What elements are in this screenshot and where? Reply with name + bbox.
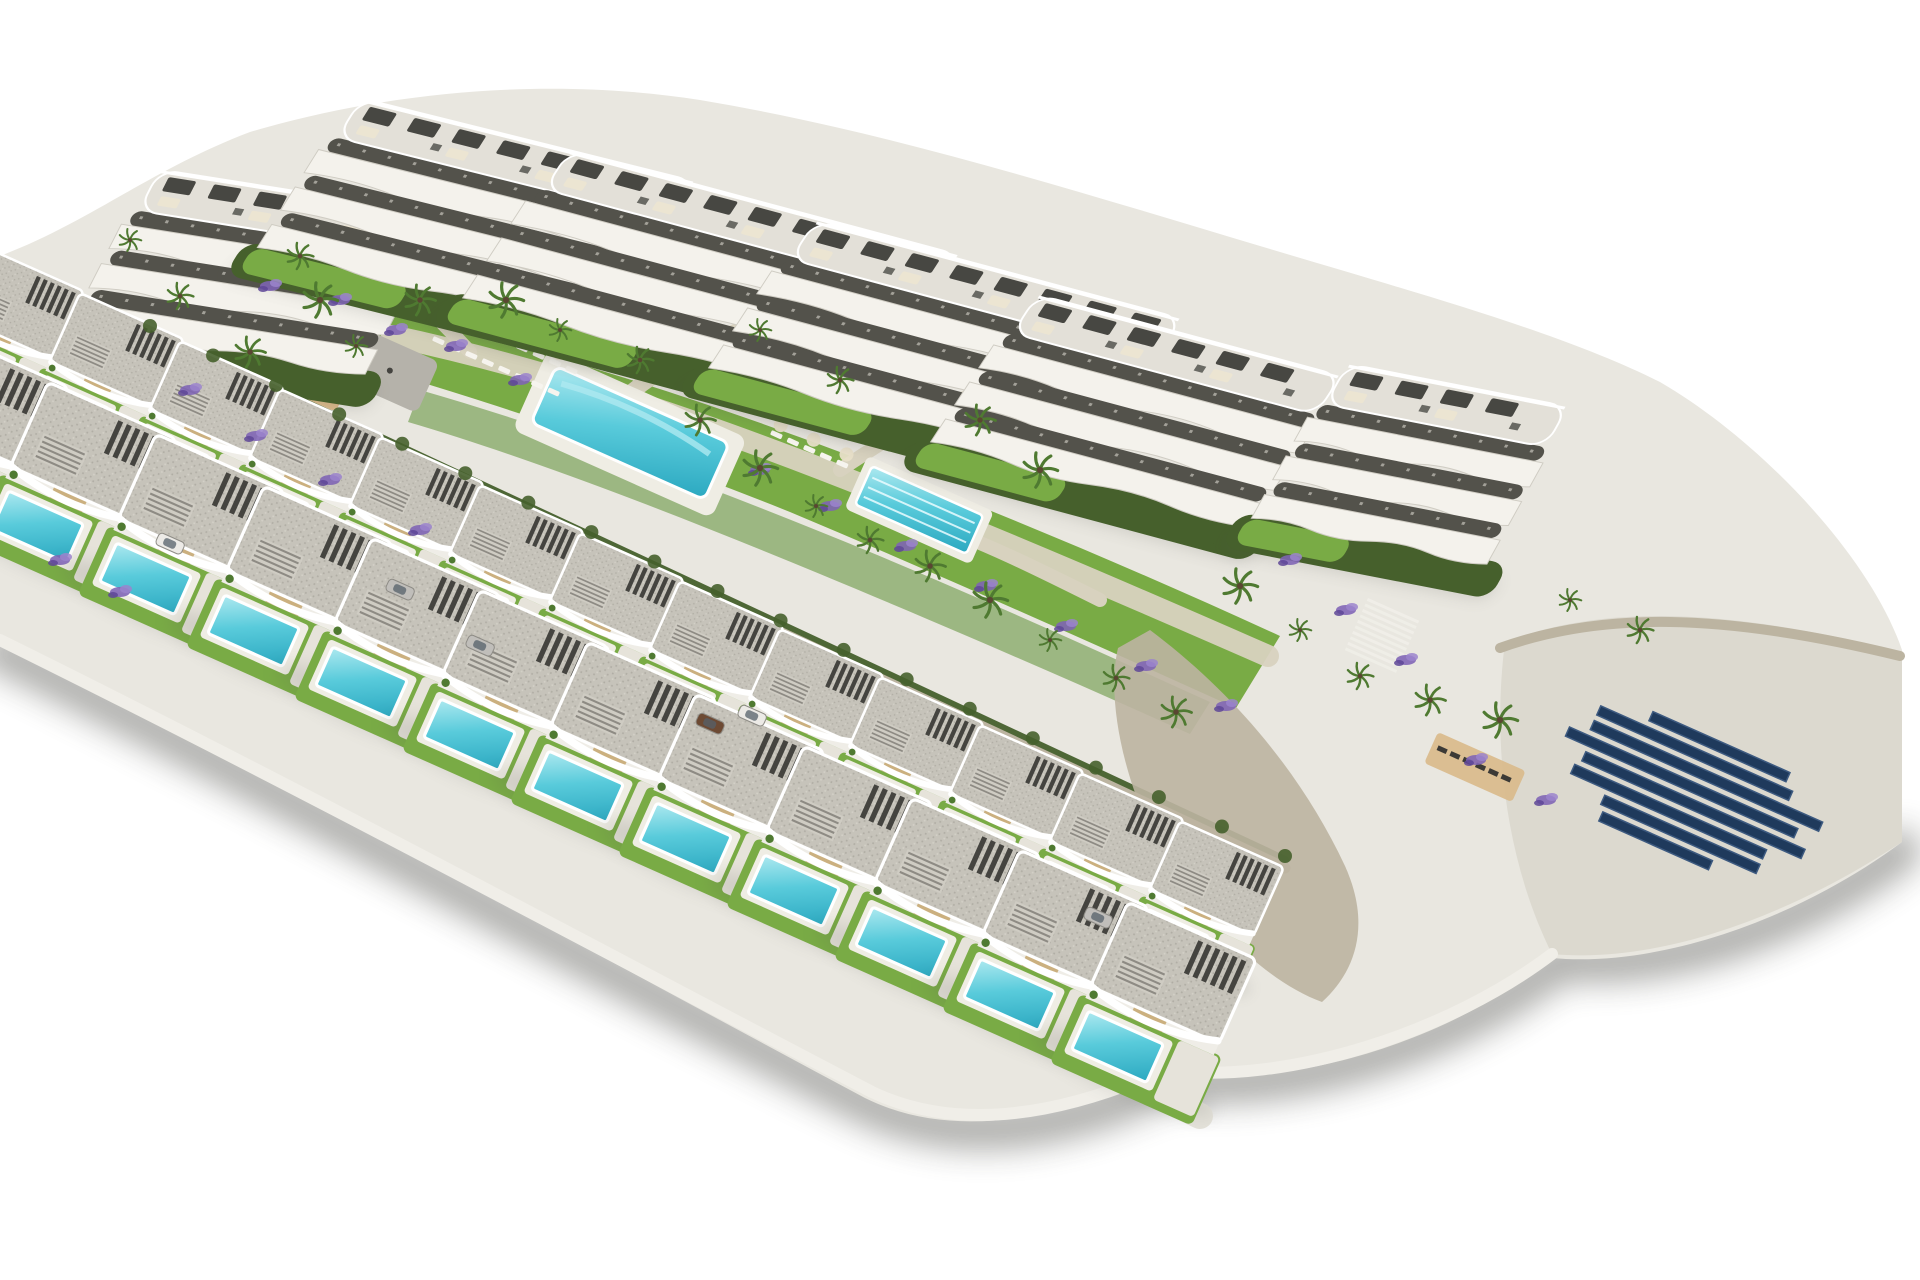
lavender-clump: [830, 499, 842, 507]
lavender-clump: [1066, 619, 1078, 627]
palm-trunk-top: [128, 238, 132, 242]
lavender-clump: [508, 380, 518, 386]
wall-hedge-bush: [395, 437, 409, 451]
lavender-clump: [1346, 603, 1358, 611]
wall-hedge-bush: [963, 702, 977, 716]
lavender-clump: [396, 323, 408, 331]
palm-trunk-top: [838, 378, 843, 383]
lavender-clump: [60, 553, 72, 561]
wall-hedge-bush: [711, 584, 725, 598]
wall-hedge-bush: [1089, 761, 1103, 775]
lavender-clump: [384, 330, 394, 336]
lavender-clump: [986, 579, 998, 587]
palm-trunk-top: [868, 538, 873, 543]
lavender-clump: [1394, 660, 1404, 666]
palm-trunk-top: [814, 504, 818, 508]
palm-trunk-top: [298, 254, 303, 259]
palm-trunk-top: [1237, 583, 1243, 589]
palm-trunk-top: [987, 597, 993, 603]
palm-trunk-top: [178, 294, 183, 299]
lavender-clump: [1146, 659, 1158, 667]
palm-trunk-top: [1568, 598, 1572, 602]
lavender-clump: [258, 286, 268, 292]
lavender-clump: [340, 293, 352, 301]
palm-trunk-top: [1037, 467, 1043, 473]
palm-trunk-top: [977, 417, 983, 423]
lavender-clump: [1534, 800, 1544, 806]
palm-trunk-top: [638, 358, 643, 363]
wall-hedge-bush: [206, 348, 220, 362]
palm-trunk-top: [1497, 717, 1503, 723]
wall-hedge-bush: [1152, 790, 1166, 804]
wall-hedge-bush: [647, 555, 661, 569]
lavender-clump: [48, 560, 58, 566]
lavender-clump: [1278, 560, 1288, 566]
palm-trunk-top: [417, 297, 423, 303]
palm-trunk-top: [317, 297, 323, 303]
wall-hedge-bush: [900, 672, 914, 686]
wall-hedge-bush: [521, 496, 535, 510]
lavender-clump: [178, 390, 188, 396]
lavender-clump: [974, 586, 984, 592]
wall-hedge-bush: [1278, 849, 1292, 863]
palm-trunk-top: [247, 349, 253, 355]
lavender-clump: [444, 346, 454, 352]
wall-hedge-bush: [584, 525, 598, 539]
lavender-clump: [1546, 793, 1558, 801]
lavender-clump: [1464, 760, 1474, 766]
wall-hedge-bush: [332, 407, 346, 421]
palm-trunk-top: [1427, 697, 1433, 703]
wall-hedge-bush: [837, 643, 851, 657]
palm-trunk-top: [1358, 674, 1363, 679]
lavender-clump: [1214, 706, 1224, 712]
lavender-clump: [244, 436, 254, 442]
lavender-clump: [1406, 653, 1418, 661]
palm-trunk-top: [927, 563, 933, 569]
palm-trunk-top: [558, 328, 562, 332]
palm-trunk-top: [758, 328, 762, 332]
wall-hedge-bush: [143, 319, 157, 333]
wall-hedge-bush: [269, 378, 283, 392]
palm-trunk-top: [1638, 628, 1643, 633]
lavender-clump: [120, 585, 132, 593]
wall-hedge-bush: [1026, 731, 1040, 745]
lavender-clump: [270, 279, 282, 287]
wall-hedge-bush: [774, 613, 788, 627]
lavender-clump: [330, 473, 342, 481]
wall-hedge-bush: [1215, 820, 1229, 834]
wall-hedge-bush: [458, 466, 472, 480]
palm-trunk-top: [354, 344, 358, 348]
lavender-clump: [108, 592, 118, 598]
palm-trunk-top: [757, 465, 763, 471]
lavender-clump: [420, 523, 432, 531]
lavender-clump: [1334, 610, 1344, 616]
lavender-clump: [1476, 753, 1488, 761]
lavender-clump: [456, 339, 468, 347]
palm-trunk-top: [1048, 638, 1052, 642]
palm-trunk-top: [1298, 628, 1302, 632]
lavender-clump: [190, 383, 202, 391]
render-canvas: [0, 0, 1920, 1280]
lavender-clump: [1134, 666, 1144, 672]
palm-trunk-top: [1114, 676, 1119, 681]
palm-trunk-top: [1173, 709, 1179, 715]
lavender-clump: [1226, 699, 1238, 707]
lavender-clump: [408, 530, 418, 536]
lavender-clump: [256, 429, 268, 437]
lavender-clump: [906, 539, 918, 547]
lavender-clump: [318, 480, 328, 486]
lavender-clump: [520, 373, 532, 381]
lavender-clump: [894, 546, 904, 552]
development-aerial-render: [0, 0, 1920, 1280]
lavender-clump: [1290, 553, 1302, 561]
palm-trunk-top: [697, 417, 703, 423]
palm-trunk-top: [503, 297, 509, 303]
